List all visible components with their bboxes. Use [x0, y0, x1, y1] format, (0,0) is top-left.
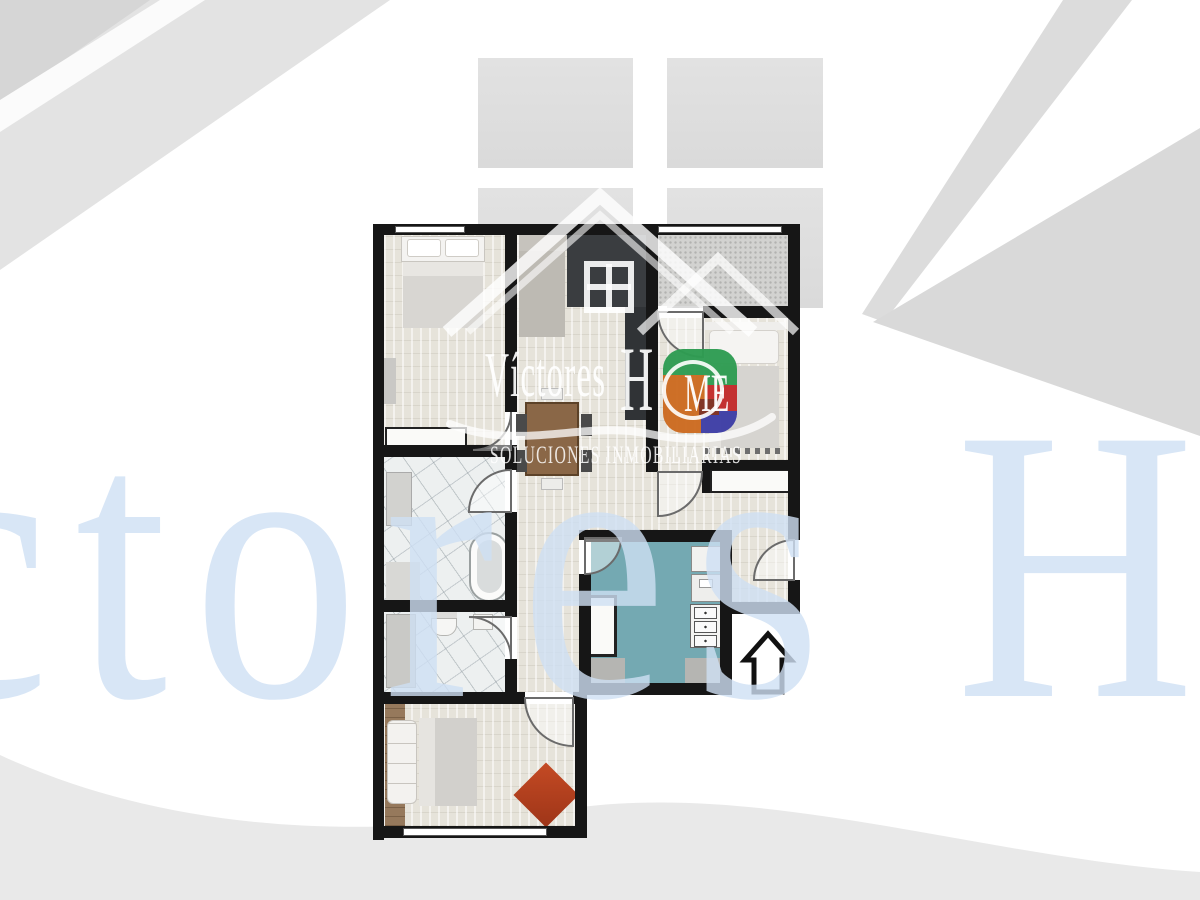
brand-name-text: Víctores — [485, 338, 606, 412]
brand-subtitle-text: SOLUCIONES INMOBILIARIAS — [490, 442, 742, 470]
wave-swoosh-icon — [450, 417, 772, 439]
real-estate-floorplan-image: íctores Ho ME Víctores H SOLUCI — [0, 0, 1200, 900]
brand-h-text: H — [620, 326, 653, 432]
roof-window-icon — [587, 264, 631, 310]
